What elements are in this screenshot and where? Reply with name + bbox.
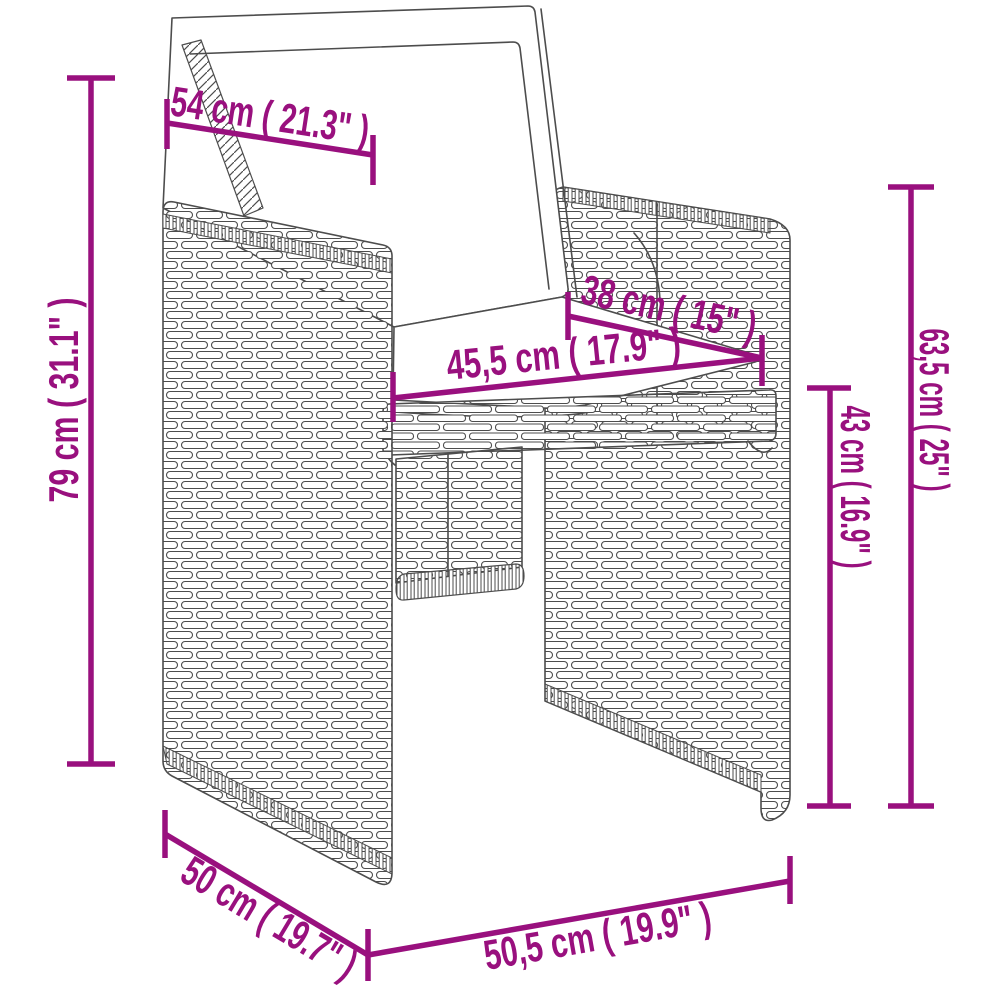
left-panel-weave — [163, 202, 392, 885]
dimension-label-overall-height: 79 cm ( 31.1" ) — [40, 298, 87, 503]
dimension-label-front-width: 50,5 cm ( 19.9" ) — [480, 893, 715, 979]
diagram-canvas: 54 cm ( 21.3" ) 79 cm ( 31.1" ) 38 cm ( … — [0, 0, 1000, 1000]
dimension-label-seat-height: 43 cm ( 16.9" ) — [832, 406, 879, 569]
dimension-label-side-depth: 50 cm ( 19.7" ) — [173, 847, 365, 988]
left-arm-panel — [163, 202, 392, 885]
right-side-panel — [545, 187, 790, 821]
under-seat-panel — [396, 447, 522, 583]
dimension-armrest-height — [888, 187, 934, 806]
right-panel-weave — [545, 187, 790, 821]
under-seat — [396, 447, 524, 600]
dimension-label-armrest-height: 63,5 cm ( 25" ) — [911, 329, 958, 492]
dimension-diagram: 54 cm ( 21.3" ) 79 cm ( 31.1" ) 38 cm ( … — [0, 0, 1000, 1000]
